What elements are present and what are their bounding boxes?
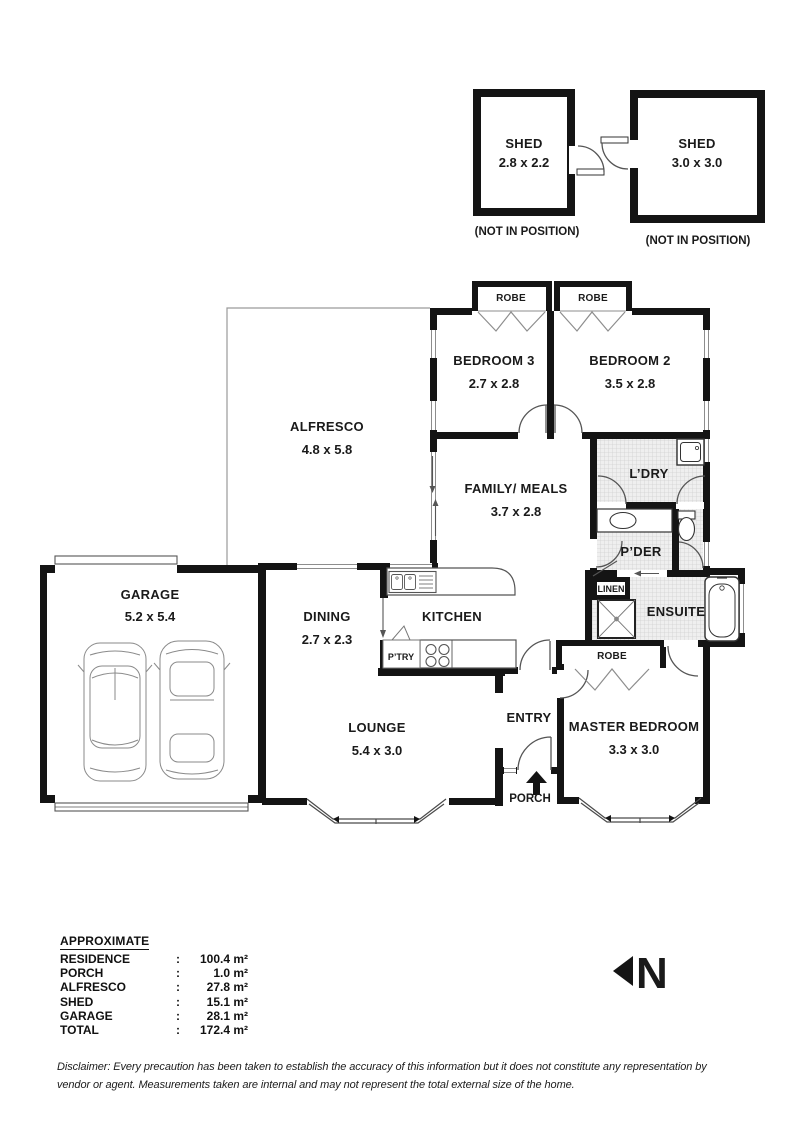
area-row: TOTAL : 172.4 m² <box>60 1023 248 1037</box>
sink-icon <box>389 572 436 593</box>
ensuite-label: ENSUITE <box>647 604 705 619</box>
bathtub-icon <box>705 577 739 641</box>
area-row-value: 27.8 m² <box>184 980 248 994</box>
lounge-label: LOUNGE <box>348 720 405 735</box>
area-row-label: PORCH <box>60 966 172 980</box>
area-row-value: 100.4 m² <box>184 952 248 966</box>
area-row-value: 1.0 m² <box>184 966 248 980</box>
kitchen-label: KITCHEN <box>422 609 482 624</box>
bedroom3-label: BEDROOM 3 <box>453 353 534 368</box>
area-row-separator: : <box>172 1009 184 1023</box>
shed2-caption: (NOT IN POSITION) <box>646 235 751 247</box>
garage-dims: 5.2 x 5.4 <box>125 609 176 624</box>
area-row-separator: : <box>172 966 184 980</box>
robe2-label: ROBE <box>578 293 608 304</box>
area-summary-title: APPROXIMATE <box>60 934 149 950</box>
north-arrow-icon: N <box>613 949 668 998</box>
linen-label: LINEN <box>598 584 625 594</box>
area-row-label: ALFRESCO <box>60 980 172 994</box>
area-row: ALFRESCO : 27.8 m² <box>60 980 248 994</box>
area-summary: APPROXIMATE RESIDENCE : 100.4 m² PORCH :… <box>60 932 248 1037</box>
area-row-value: 28.1 m² <box>184 1009 248 1023</box>
porch-label: PORCH <box>509 793 551 805</box>
car-icon <box>78 643 152 781</box>
area-row-label: SHED <box>60 995 172 1009</box>
dining-dims: 2.7 x 2.3 <box>302 632 353 647</box>
shed1-caption: (NOT IN POSITION) <box>475 226 580 238</box>
bedroom3-dims: 2.7 x 2.8 <box>469 376 520 391</box>
family-label: FAMILY/ MEALS <box>464 481 567 496</box>
area-row: PORCH : 1.0 m² <box>60 966 248 980</box>
vanity-basin-icon <box>597 509 672 532</box>
car-icon <box>154 641 230 779</box>
area-row-separator: : <box>172 1023 184 1037</box>
area-row: GARAGE : 28.1 m² <box>60 1009 248 1023</box>
stove-bench-icon <box>420 640 516 668</box>
alfresco-label: ALFRESCO <box>290 419 364 434</box>
disclaimer-line-1: Disclaimer: Every precaution has been ta… <box>57 1059 757 1077</box>
shed1-dims: 2.8 x 2.2 <box>499 155 550 170</box>
north-label: N <box>636 949 668 998</box>
entry-label: ENTRY <box>506 710 551 725</box>
area-row-label: RESIDENCE <box>60 952 172 966</box>
toilet-icon <box>678 511 695 541</box>
garage-label: GARAGE <box>121 587 180 602</box>
area-row: SHED : 15.1 m² <box>60 995 248 1009</box>
disclaimer-line-2: vendor or agent. Measurements taken are … <box>57 1077 757 1095</box>
area-row-separator: : <box>172 995 184 1009</box>
master-dims: 3.3 x 3.0 <box>609 742 660 757</box>
laundry-label: L’DRY <box>629 466 668 481</box>
area-row-label: GARAGE <box>60 1009 172 1023</box>
floor-plan-page: SHED 2.8 x 2.2 (NOT IN POSITION) SHED 3.… <box>0 0 800 1132</box>
shed2-label: SHED <box>678 136 715 151</box>
robe-master-label: ROBE <box>597 651 627 662</box>
disclaimer: Disclaimer: Every precaution has been ta… <box>57 1059 757 1094</box>
area-row-label: TOTAL <box>60 1023 172 1037</box>
laundry-tub-icon <box>677 439 704 465</box>
area-row: RESIDENCE : 100.4 m² <box>60 952 248 966</box>
area-row-separator: : <box>172 952 184 966</box>
area-row-value: 15.1 m² <box>184 995 248 1009</box>
shower-icon <box>598 600 635 638</box>
robe1-label: ROBE <box>496 293 526 304</box>
dining-label: DINING <box>303 609 350 624</box>
bay-windows <box>307 798 701 824</box>
pantry-label: P’TRY <box>388 652 414 662</box>
shed2-dims: 3.0 x 3.0 <box>672 155 723 170</box>
alfresco-outline <box>227 308 430 565</box>
area-row-separator: : <box>172 980 184 994</box>
lounge-dims: 5.4 x 3.0 <box>352 743 403 758</box>
bedroom2-dims: 3.5 x 2.8 <box>605 376 656 391</box>
alfresco-dims: 4.8 x 5.8 <box>302 442 353 457</box>
bedroom2-label: BEDROOM 2 <box>589 353 670 368</box>
area-row-value: 172.4 m² <box>184 1023 248 1037</box>
shed1-label: SHED <box>505 136 542 151</box>
family-dims: 3.7 x 2.8 <box>491 504 542 519</box>
master-label: MASTER BEDROOM <box>569 719 700 734</box>
kitchen-bench-icon <box>387 568 515 595</box>
powder-label: P’DER <box>620 544 662 559</box>
porch-arrow-icon <box>526 771 547 795</box>
